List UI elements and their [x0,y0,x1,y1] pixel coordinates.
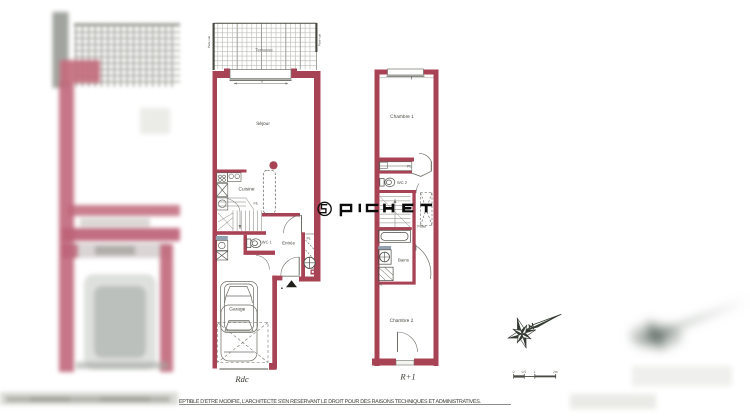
svg-text:Terrasse: Terrasse [255,48,273,53]
svg-text:Bains: Bains [398,257,410,262]
svg-text:FE: FE [254,202,259,206]
svg-text:Pare-vue: Pare-vue [318,34,322,47]
svg-text:Palier: Palier [417,225,427,229]
svg-text:Rdc: Rdc [234,374,248,384]
svg-text:WC 2: WC 2 [397,180,408,185]
svg-text:Chambre 2: Chambre 2 [390,318,414,324]
svg-text:Séjour: Séjour [256,121,270,127]
svg-text:1: 1 [534,370,536,374]
svg-text:PL: PL [379,282,383,286]
svg-text:0.5: 0.5 [522,370,527,374]
svg-text:Chambre 1: Chambre 1 [390,114,414,120]
svg-text:0: 0 [513,370,515,374]
svg-text:Cuisine: Cuisine [239,187,255,193]
svg-text:PL: PL [306,236,310,240]
svg-text:Pare-vue: Pare-vue [207,36,211,49]
svg-text:R+1: R+1 [399,372,415,382]
svg-text:Garage: Garage [229,307,245,313]
svg-text:PL: PL [407,165,411,169]
svg-text:Entrée: Entrée [282,240,295,245]
svg-text:WC 1: WC 1 [262,240,273,245]
svg-text:2m: 2m [553,370,558,374]
svg-text:EPTIBLE D’ETRE MODIFIE, L’ARCH: EPTIBLE D’ETRE MODIFIE, L’ARCHITECTE S’E… [179,399,481,405]
